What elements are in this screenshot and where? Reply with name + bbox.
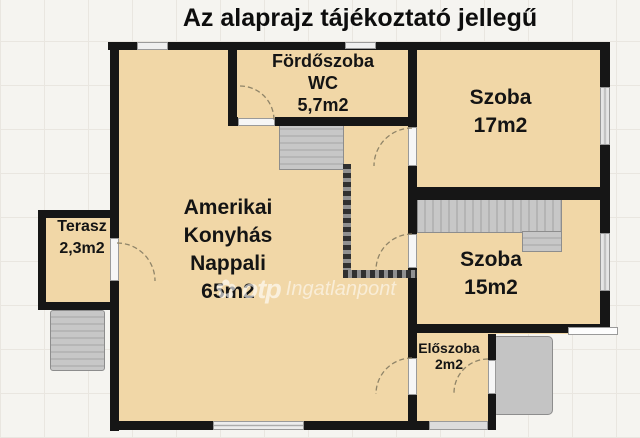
room-label-line: Előszoba [410, 340, 488, 356]
room-area-label: 5,7m2 [238, 94, 408, 116]
wall-terrace-bottom [38, 302, 119, 310]
wall-bathroom-bottom-left [228, 117, 238, 126]
room-label-terrace: Terasz 2,3m2 [46, 216, 118, 260]
room-area-label: 2m2 [410, 356, 488, 372]
wall-bathroom-bottom-right [275, 117, 417, 126]
window-living-bottom [213, 421, 304, 430]
entry-threshold [429, 421, 488, 430]
room-label-line: Terasz [46, 216, 118, 238]
wall-room17-room15-divider [409, 187, 608, 200]
window-room17 [600, 87, 610, 145]
room-label-entry: Előszoba 2m2 [410, 340, 488, 372]
watermark: ✿ otp Ingatlanpont [215, 270, 455, 308]
room-label-line: Szoba [418, 84, 583, 112]
room-label-bathroom: Fördőszoba WC 5,7m2 [238, 50, 408, 116]
room-label-line: Konyhás [128, 222, 328, 250]
staircase-main [417, 195, 562, 233]
wall-center-vertical-2 [408, 166, 417, 234]
room-label-line: Amerikai [128, 194, 328, 222]
watermark-brand: otp [242, 274, 281, 305]
page-title: Az alaprajz tájékoztató jellegű [110, 4, 610, 33]
floor-plan-canvas: Az alaprajz tájékoztató jellegű [0, 0, 640, 438]
window-sill-bottom-right [568, 327, 618, 335]
room-area-label: 17m2 [418, 112, 583, 140]
wall-entry-right-upper [488, 334, 496, 360]
stair-break-line-vertical [343, 164, 351, 272]
wall-center-vertical-4 [408, 395, 417, 430]
bathroom-door-opening [238, 118, 275, 126]
room-label-line: Fördőszoba [238, 50, 408, 72]
room-area-label: 2,3m2 [46, 238, 118, 260]
front-door-opening [488, 360, 496, 394]
wall-center-vertical-1 [408, 42, 417, 127]
watermark-name: Ingatlanpont [286, 278, 396, 301]
window-top-left [137, 42, 168, 50]
room17-door-opening [408, 127, 417, 166]
room-label-line: WC [238, 72, 408, 94]
wall-bathroom-left [228, 42, 237, 124]
otp-flower-icon: ✿ [215, 276, 237, 302]
wall-terrace-left [38, 210, 46, 310]
stair-flight-upper [279, 122, 344, 170]
entrance-porch [492, 336, 553, 415]
room-label-room17: Szoba 17m2 [418, 84, 583, 140]
terrace-steps [50, 310, 105, 371]
window-room15 [600, 233, 610, 291]
window-top-center [345, 42, 376, 49]
wall-entry-right-lower [488, 394, 496, 430]
